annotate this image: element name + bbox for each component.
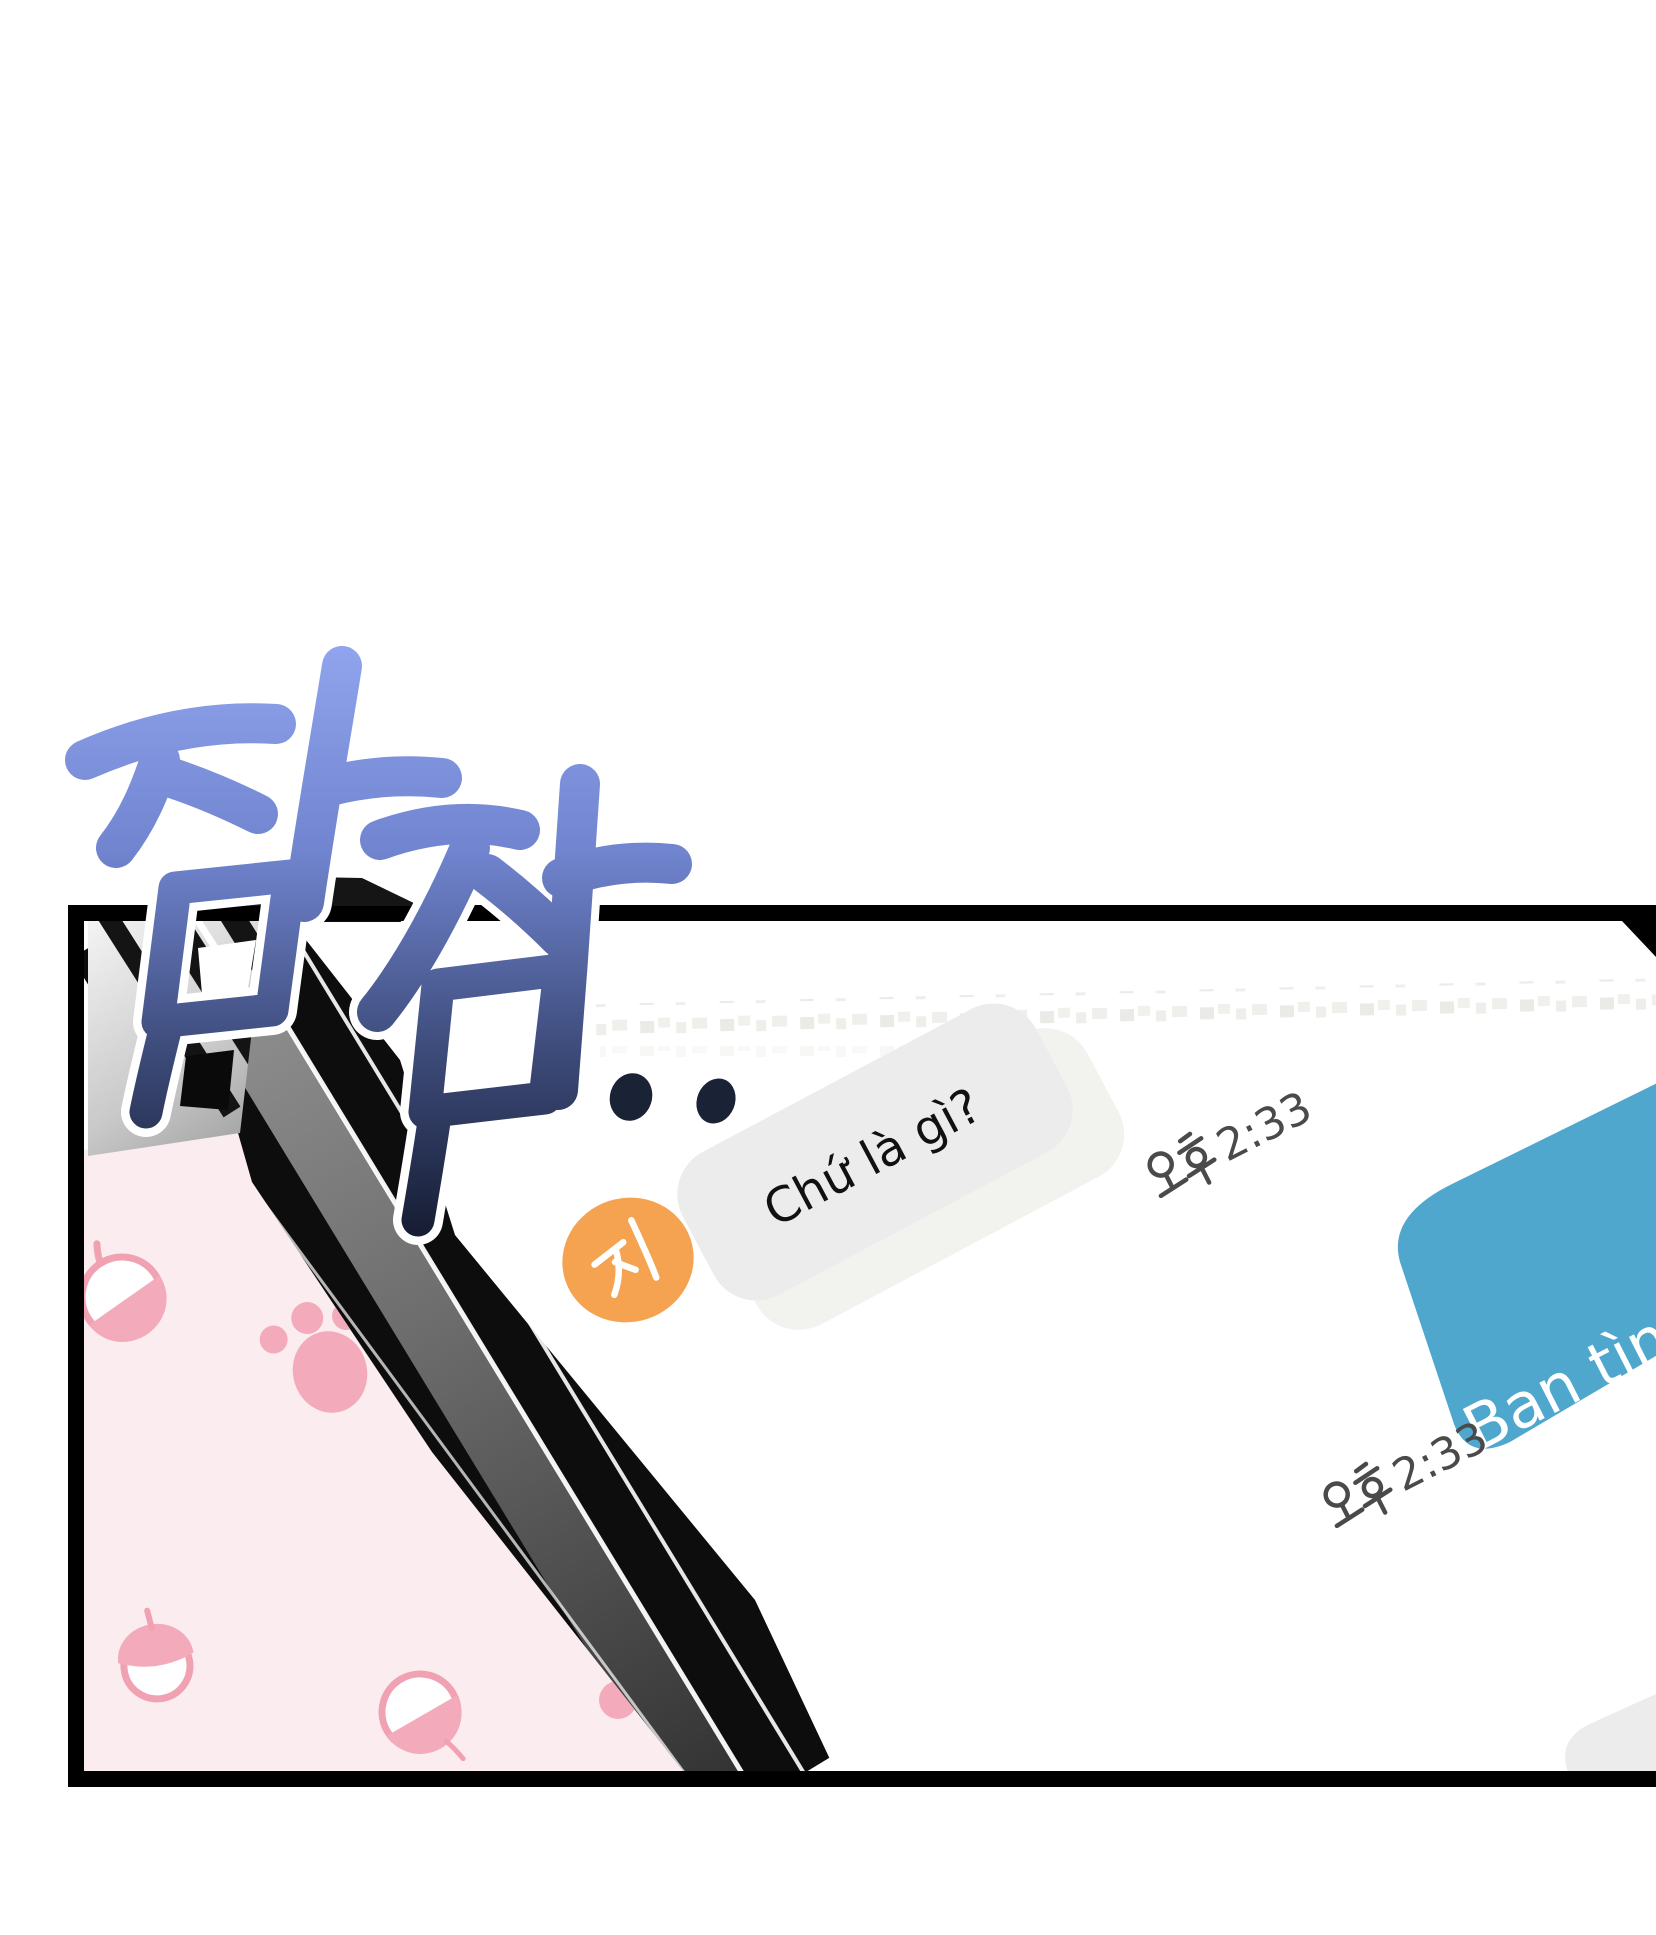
phone-side-button	[180, 1050, 234, 1110]
webtoon-page: Chứ là gì? 2:33 Bạn tình 2:3	[0, 0, 1656, 1931]
blurred-message-row	[600, 1046, 900, 1058]
